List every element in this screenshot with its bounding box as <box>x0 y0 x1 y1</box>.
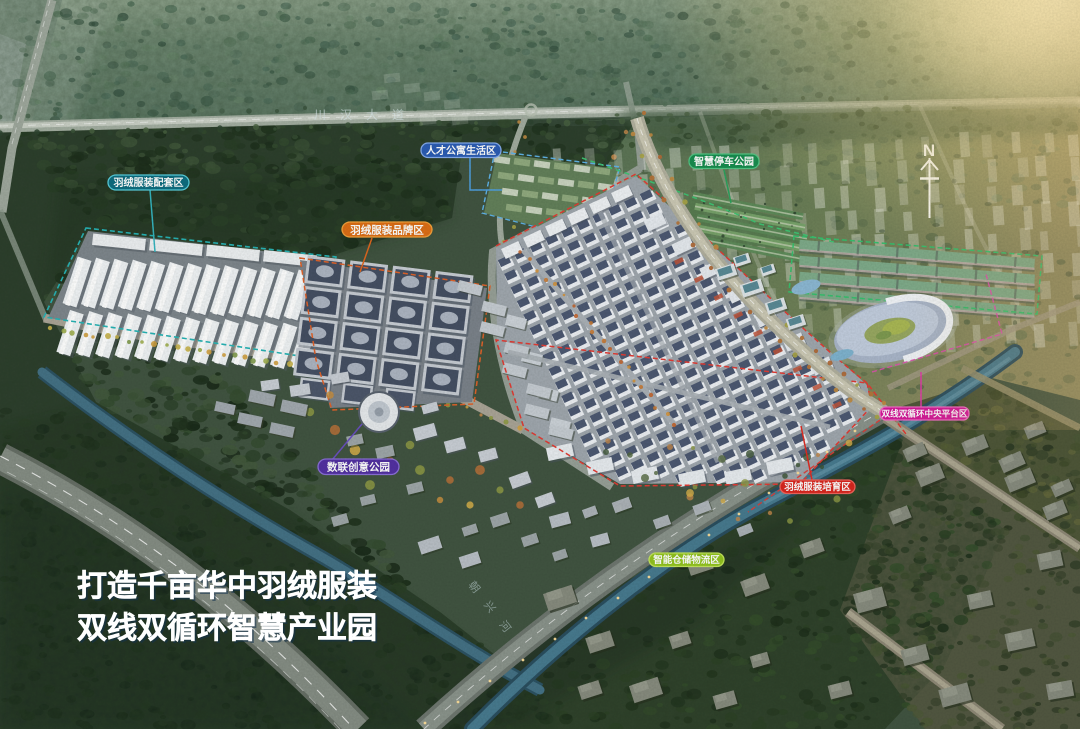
svg-text:打造千亩华中羽绒服装: 打造千亩华中羽绒服装 <box>77 569 377 603</box>
svg-text:双线双循环智慧产业园: 双线双循环智慧产业园 <box>77 612 377 645</box>
